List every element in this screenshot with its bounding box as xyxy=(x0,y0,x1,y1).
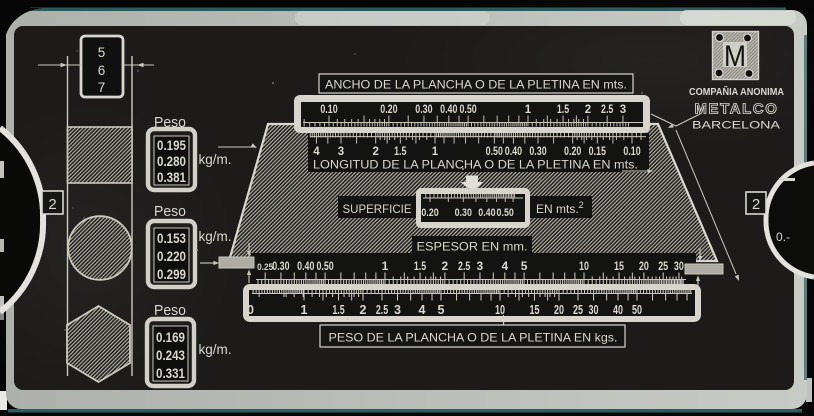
svg-text:0.50: 0.50 xyxy=(316,259,334,273)
svg-text:4: 4 xyxy=(501,259,508,273)
svg-text:50: 50 xyxy=(632,303,642,317)
svg-text:0.20: 0.20 xyxy=(380,104,397,116)
svg-text:SUPERFICIE: SUPERFICIE xyxy=(343,202,412,216)
svg-text:kg/m.: kg/m. xyxy=(199,229,232,244)
svg-text:30: 30 xyxy=(589,303,599,317)
svg-text:0.153: 0.153 xyxy=(157,230,186,246)
svg-text:2: 2 xyxy=(48,196,56,213)
svg-text:0.169: 0.169 xyxy=(156,329,185,345)
svg-text:EN mts.2: EN mts.2 xyxy=(536,200,584,216)
svg-text:0.243: 0.243 xyxy=(156,347,185,363)
svg-text:20: 20 xyxy=(554,303,564,317)
svg-text:10: 10 xyxy=(579,259,589,273)
svg-text:0.30: 0.30 xyxy=(529,146,546,158)
svg-text:3: 3 xyxy=(477,259,484,273)
svg-text:PESO DE LA PLANCHA O DE LA PLE: PESO DE LA PLANCHA O DE LA PLETINA EN kg… xyxy=(329,331,618,345)
svg-text:7: 7 xyxy=(98,80,106,95)
svg-text:ESPESOR EN mm.: ESPESOR EN mm. xyxy=(417,240,528,254)
svg-text:0.40: 0.40 xyxy=(505,146,522,158)
svg-text:3: 3 xyxy=(620,104,626,116)
svg-text:0: 0 xyxy=(247,303,254,317)
svg-text:1.5: 1.5 xyxy=(394,146,407,158)
svg-text:40: 40 xyxy=(613,303,623,317)
svg-text:5: 5 xyxy=(98,45,106,60)
svg-text:5: 5 xyxy=(438,303,445,317)
svg-text:2: 2 xyxy=(360,303,367,317)
svg-text:0.381: 0.381 xyxy=(157,169,186,185)
svg-text:0.30: 0.30 xyxy=(272,259,290,273)
svg-text:kg/m.: kg/m. xyxy=(199,152,232,167)
svg-text:0.299: 0.299 xyxy=(157,266,186,282)
svg-text:1: 1 xyxy=(382,259,389,273)
svg-text:2: 2 xyxy=(442,259,449,273)
svg-text:0.40: 0.40 xyxy=(478,207,495,219)
svg-text:15: 15 xyxy=(614,259,624,273)
svg-text:2.5: 2.5 xyxy=(601,104,614,116)
svg-text:M: M xyxy=(724,40,746,73)
svg-text:Peso: Peso xyxy=(154,302,186,319)
svg-text:2: 2 xyxy=(752,196,760,213)
svg-text:BARCELONA: BARCELONA xyxy=(692,120,781,132)
svg-text:6: 6 xyxy=(98,63,106,78)
svg-text:0.20: 0.20 xyxy=(564,146,581,158)
svg-text:3: 3 xyxy=(338,146,344,158)
svg-text:20: 20 xyxy=(639,259,649,273)
svg-text:0.40: 0.40 xyxy=(297,259,315,273)
svg-text:0.20: 0.20 xyxy=(421,207,438,219)
svg-text:1.5: 1.5 xyxy=(332,303,344,317)
svg-text:1.5: 1.5 xyxy=(414,259,427,273)
svg-text:1: 1 xyxy=(301,303,308,317)
svg-text:25: 25 xyxy=(658,259,668,273)
svg-text:0.-: 0.- xyxy=(776,230,790,244)
svg-text:0.220: 0.220 xyxy=(157,248,186,264)
svg-text:2: 2 xyxy=(372,146,378,158)
svg-text:2.5: 2.5 xyxy=(458,259,471,273)
svg-text:3: 3 xyxy=(394,303,401,317)
svg-text:0.50: 0.50 xyxy=(459,104,476,116)
svg-text:COMPAÑIA ANONIMA: COMPAÑIA ANONIMA xyxy=(689,85,784,98)
svg-text:0.10: 0.10 xyxy=(320,104,337,116)
svg-text:1: 1 xyxy=(432,146,439,158)
svg-text:2.5: 2.5 xyxy=(376,303,388,317)
svg-text:30: 30 xyxy=(674,259,684,273)
svg-text:0.15: 0.15 xyxy=(589,146,607,158)
svg-text:5: 5 xyxy=(521,259,528,273)
svg-text:0.50: 0.50 xyxy=(486,146,503,158)
svg-text:4: 4 xyxy=(313,146,320,158)
svg-text:0.40: 0.40 xyxy=(440,104,457,116)
svg-text:0.50: 0.50 xyxy=(497,207,514,219)
svg-text:25: 25 xyxy=(573,303,583,317)
svg-text:LONGITUD DE LA PLANCHA O DE LA: LONGITUD DE LA PLANCHA O DE LA PLETINA E… xyxy=(313,158,638,172)
svg-text:ANCHO DE LA PLANCHA O DE LA PL: ANCHO DE LA PLANCHA O DE LA PLETINA EN m… xyxy=(325,78,627,92)
svg-text:0.331: 0.331 xyxy=(156,365,185,381)
svg-text:0.195: 0.195 xyxy=(157,137,186,153)
svg-text:0.30: 0.30 xyxy=(455,207,472,219)
svg-text:4: 4 xyxy=(419,303,426,317)
svg-text:METALCO: METALCO xyxy=(695,102,779,118)
svg-text:0.30: 0.30 xyxy=(415,104,432,116)
svg-text:1.5: 1.5 xyxy=(557,104,570,116)
svg-text:kg/m.: kg/m. xyxy=(199,342,232,357)
svg-text:0.280: 0.280 xyxy=(157,153,186,169)
svg-text:15: 15 xyxy=(530,303,540,317)
svg-text:2: 2 xyxy=(585,104,591,116)
svg-text:Peso: Peso xyxy=(154,203,186,220)
svg-text:0.10: 0.10 xyxy=(623,146,640,158)
svg-text:10: 10 xyxy=(495,303,505,317)
svg-text:1: 1 xyxy=(525,104,532,116)
